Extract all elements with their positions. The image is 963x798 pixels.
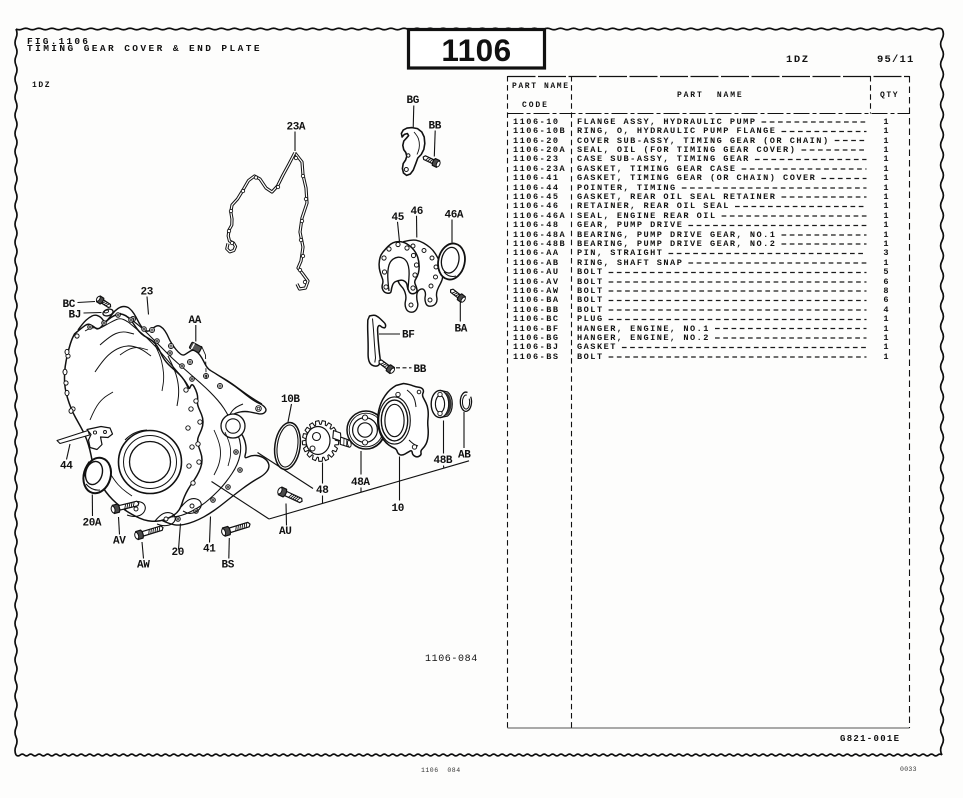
svg-text:BB: BB [414,364,427,376]
svg-text:41: 41 [203,544,216,556]
svg-text:46A: 46A [445,210,464,222]
svg-text:AB: AB [458,450,471,462]
svg-text:BG: BG [407,95,420,107]
svg-text:BJ: BJ [69,310,81,322]
svg-text:AA: AA [189,315,202,327]
svg-text:AV: AV [113,536,126,548]
svg-text:BF: BF [402,330,414,342]
svg-text:BA: BA [455,324,468,336]
svg-text:48A: 48A [351,477,370,489]
svg-text:BS: BS [222,560,235,572]
svg-text:AW: AW [137,560,150,572]
svg-text:10: 10 [392,503,404,515]
svg-text:20A: 20A [83,518,102,530]
svg-text:AU: AU [279,526,291,538]
svg-text:48B: 48B [434,455,453,467]
svg-text:10B: 10B [281,394,300,406]
svg-text:23A: 23A [287,122,306,134]
svg-text:20: 20 [172,547,184,559]
svg-text:44: 44 [60,461,73,473]
svg-text:45: 45 [392,212,405,224]
svg-text:48: 48 [316,485,329,497]
